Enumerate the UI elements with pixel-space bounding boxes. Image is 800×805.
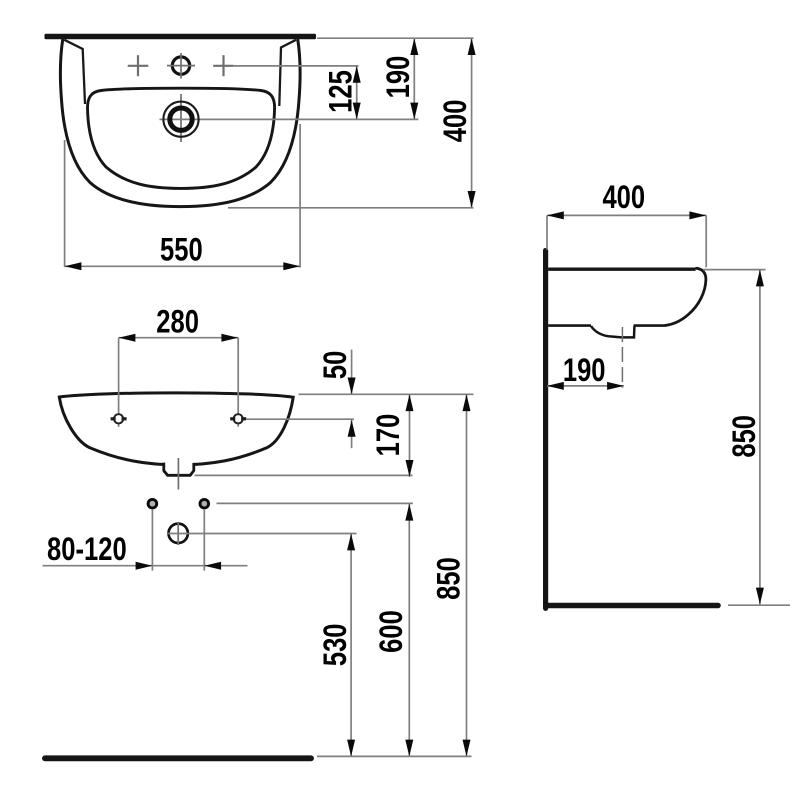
svg-text:190: 190 — [563, 353, 606, 388]
svg-text:550: 550 — [160, 233, 203, 268]
svg-text:190: 190 — [382, 56, 417, 99]
svg-text:400: 400 — [438, 100, 473, 143]
svg-text:400: 400 — [602, 181, 645, 216]
svg-text:50: 50 — [318, 351, 353, 379]
svg-text:530: 530 — [319, 623, 354, 666]
svg-text:600: 600 — [374, 610, 409, 653]
svg-text:170: 170 — [371, 414, 406, 457]
svg-text:125: 125 — [324, 70, 359, 113]
svg-text:280: 280 — [156, 305, 199, 340]
svg-text:850: 850 — [432, 557, 467, 600]
svg-text:850: 850 — [728, 415, 763, 458]
svg-text:80-120: 80-120 — [47, 533, 127, 568]
